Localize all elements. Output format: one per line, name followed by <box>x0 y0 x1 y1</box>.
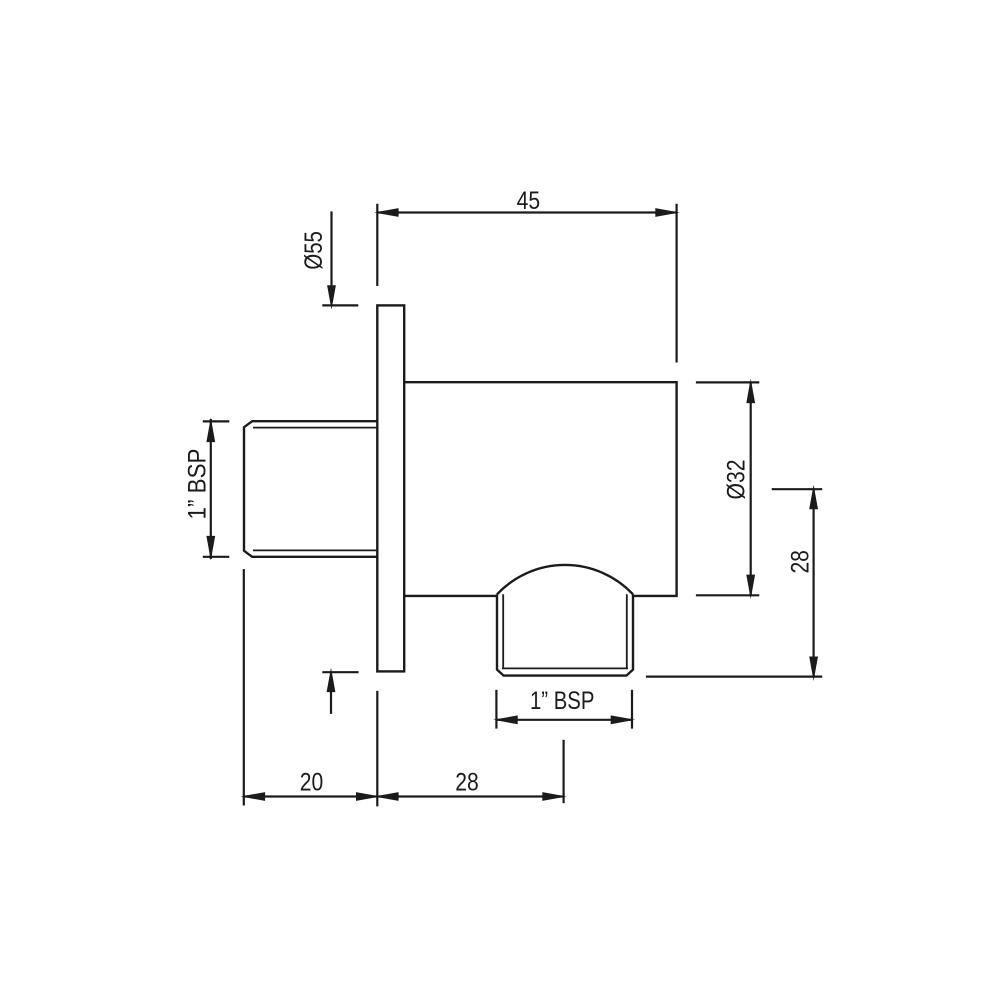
svg-text:Ø32: Ø32 <box>723 460 751 500</box>
svg-text:Ø55: Ø55 <box>300 231 328 270</box>
svg-text:1” BSP: 1” BSP <box>530 687 595 715</box>
svg-text:28: 28 <box>787 550 815 574</box>
svg-text:20: 20 <box>300 769 324 797</box>
svg-text:45: 45 <box>517 187 541 215</box>
svg-text:28: 28 <box>455 769 479 797</box>
svg-text:1” BSP: 1” BSP <box>183 449 211 520</box>
